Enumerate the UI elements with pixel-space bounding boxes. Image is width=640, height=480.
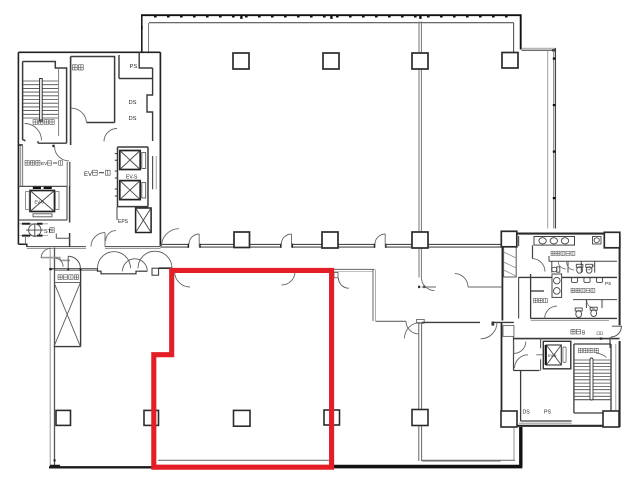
svg-text:EV: EV: [41, 161, 48, 166]
svg-text:DS: DS: [129, 100, 137, 106]
svg-text:DS: DS: [523, 410, 531, 416]
svg-text:PS: PS: [130, 64, 138, 70]
svg-text:PS: PS: [605, 281, 611, 286]
svg-text:EV: EV: [84, 172, 92, 178]
svg-text:EV-6: EV-6: [35, 200, 45, 205]
svg-text:EPS: EPS: [118, 219, 129, 225]
svg-text:PS: PS: [544, 410, 551, 416]
svg-text:DS: DS: [129, 116, 137, 122]
svg-text:EV-S: EV-S: [126, 175, 138, 181]
svg-text:EV-6: EV-6: [548, 353, 556, 358]
